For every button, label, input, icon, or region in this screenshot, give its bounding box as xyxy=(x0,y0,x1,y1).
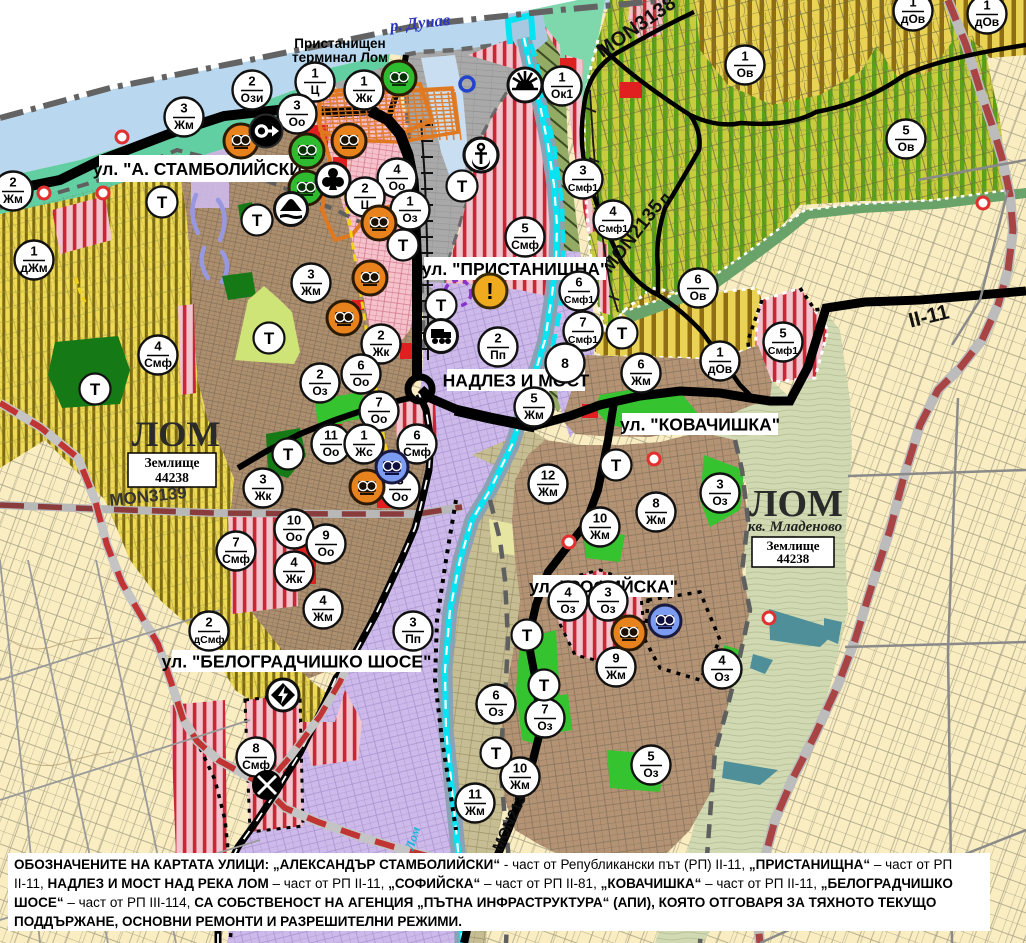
svg-text:дОв: дОв xyxy=(708,362,732,376)
svg-text:Оз: Оз xyxy=(488,705,503,719)
svg-text:Жм: Жм xyxy=(645,513,666,527)
svg-text:Смф: Смф xyxy=(511,238,539,252)
svg-text:Жм: Жм xyxy=(537,485,558,499)
svg-text:10: 10 xyxy=(593,511,607,526)
svg-text:Оз: Оз xyxy=(714,670,729,684)
svg-text:Оо: Оо xyxy=(318,545,335,559)
svg-text:Оз: Оз xyxy=(600,602,615,616)
svg-text:Ов: Ов xyxy=(737,66,754,80)
svg-text:Т: Т xyxy=(457,177,468,196)
svg-text:дОв: дОв xyxy=(901,12,925,26)
svg-text:Смф: Смф xyxy=(222,552,250,566)
svg-text:Ц: Ц xyxy=(311,83,320,97)
svg-text:10: 10 xyxy=(513,761,527,776)
svg-text:Смф: Смф xyxy=(242,758,270,772)
svg-text:Т: Т xyxy=(264,329,275,348)
svg-text:3: 3 xyxy=(180,101,187,116)
svg-text:1: 1 xyxy=(406,194,413,209)
svg-text:!: ! xyxy=(486,278,494,304)
svg-text:4: 4 xyxy=(564,585,572,600)
svg-text:Оз: Оз xyxy=(712,494,727,508)
svg-text:ул. "А. СТАМБОЛИЙСКИ": ул. "А. СТАМБОЛИЙСКИ" xyxy=(93,158,310,179)
svg-text:Т: Т xyxy=(611,456,622,475)
svg-text:Жк: Жк xyxy=(254,489,273,503)
svg-text:5: 5 xyxy=(902,123,909,138)
svg-text:4: 4 xyxy=(154,339,162,354)
svg-text:ЛОМ: ЛОМ xyxy=(132,414,221,454)
svg-text:8: 8 xyxy=(252,741,259,756)
svg-text:Оо: Оо xyxy=(371,412,388,426)
svg-text:1: 1 xyxy=(716,345,723,360)
svg-text:Смф1: Смф1 xyxy=(598,223,628,235)
svg-text:Т: Т xyxy=(157,193,168,212)
svg-text:4: 4 xyxy=(319,593,327,608)
svg-text:Ов: Ов xyxy=(690,289,707,303)
svg-text:1: 1 xyxy=(30,244,37,259)
svg-text:ул. "БЕЛОГРАДЧИШКО ШОСЕ": ул. "БЕЛОГРАДЧИШКО ШОСЕ" xyxy=(162,651,432,671)
svg-text:7: 7 xyxy=(541,702,548,717)
svg-text:7: 7 xyxy=(232,535,239,550)
svg-text:дЖм: дЖм xyxy=(20,261,47,275)
svg-text:Оо: Оо xyxy=(353,375,370,389)
svg-text:11: 11 xyxy=(468,787,482,802)
svg-text:11: 11 xyxy=(324,428,338,443)
svg-text:Ов: Ов xyxy=(898,140,915,154)
svg-text:дСмф: дСмф xyxy=(193,634,224,646)
svg-text:2: 2 xyxy=(9,175,16,190)
svg-text:4: 4 xyxy=(609,204,617,219)
svg-text:Пп: Пп xyxy=(405,632,421,646)
svg-text:3: 3 xyxy=(307,267,314,282)
svg-text:кв. Младеново: кв. Младеново xyxy=(748,519,842,535)
svg-text:6: 6 xyxy=(357,358,364,373)
svg-text:Жм: Жм xyxy=(312,610,333,624)
svg-text:1: 1 xyxy=(558,70,565,85)
svg-text:Смф: Смф xyxy=(403,445,431,459)
svg-text:Пп: Пп xyxy=(490,348,506,362)
svg-text:Пристанищен: Пристанищен xyxy=(294,36,385,51)
svg-text:1: 1 xyxy=(983,0,990,13)
svg-text:Оз: Оз xyxy=(560,602,575,616)
svg-text:1: 1 xyxy=(360,428,367,443)
svg-text:4: 4 xyxy=(393,162,401,177)
svg-text:Оо: Оо xyxy=(323,445,340,459)
svg-text:Жм: Жм xyxy=(173,118,194,132)
svg-text:7: 7 xyxy=(375,395,382,410)
svg-text:Жм: Жм xyxy=(589,528,610,542)
svg-text:1: 1 xyxy=(741,49,748,64)
svg-text:Смф1: Смф1 xyxy=(568,182,598,194)
svg-text:2: 2 xyxy=(248,74,255,89)
svg-text:Жм: Жм xyxy=(509,778,530,792)
svg-text:7: 7 xyxy=(579,315,586,330)
svg-text:4: 4 xyxy=(290,555,298,570)
svg-text:3: 3 xyxy=(259,472,266,487)
svg-text:5: 5 xyxy=(530,391,537,406)
svg-text:44238: 44238 xyxy=(777,551,810,566)
svg-text:дОв: дОв xyxy=(975,15,999,29)
svg-text:3: 3 xyxy=(579,163,586,178)
svg-text:Т: Т xyxy=(617,324,628,343)
svg-text:6: 6 xyxy=(694,272,701,287)
svg-text:Жк: Жк xyxy=(355,91,374,105)
svg-text:8: 8 xyxy=(652,496,659,511)
svg-text:9: 9 xyxy=(322,528,329,543)
svg-text:Т: Т xyxy=(539,676,550,695)
svg-text:6: 6 xyxy=(575,275,582,290)
svg-text:Жм: Жм xyxy=(2,192,23,206)
svg-text:10: 10 xyxy=(287,513,301,528)
svg-text:Жм: Жм xyxy=(630,374,651,388)
svg-text:Жм: Жм xyxy=(523,408,544,422)
svg-text:5: 5 xyxy=(779,326,786,341)
svg-text:Т: Т xyxy=(283,445,294,464)
svg-text:Оз: Оз xyxy=(643,766,658,780)
svg-text:6: 6 xyxy=(637,357,644,372)
svg-text:Ози: Ози xyxy=(241,91,264,105)
svg-text:8: 8 xyxy=(561,355,569,371)
svg-text:1: 1 xyxy=(311,66,318,81)
svg-text:Оо: Оо xyxy=(286,530,303,544)
svg-text:44238: 44238 xyxy=(155,470,189,485)
svg-text:2: 2 xyxy=(361,181,368,196)
svg-text:3: 3 xyxy=(409,615,416,630)
svg-text:Т: Т xyxy=(398,236,409,255)
svg-text:1: 1 xyxy=(909,0,916,10)
svg-text:Землище: Землище xyxy=(144,455,199,470)
svg-text:3: 3 xyxy=(293,98,300,113)
svg-text:Оз: Оз xyxy=(312,384,327,398)
svg-text:Т: Т xyxy=(90,380,101,399)
svg-text:2: 2 xyxy=(205,615,212,630)
svg-text:9: 9 xyxy=(612,651,619,666)
svg-text:Оз: Оз xyxy=(402,211,417,225)
svg-text:Т: Т xyxy=(491,744,502,763)
svg-text:Жк: Жк xyxy=(285,572,304,586)
svg-text:Оо: Оо xyxy=(289,115,306,129)
svg-text:4: 4 xyxy=(718,653,726,668)
svg-text:Ок1: Ок1 xyxy=(551,87,573,101)
svg-text:Жм: Жм xyxy=(464,804,485,818)
svg-text:ул. "КОВАЧИШКА": ул. "КОВАЧИШКА" xyxy=(620,414,780,434)
svg-text:2: 2 xyxy=(316,367,323,382)
svg-text:5: 5 xyxy=(521,221,528,236)
svg-text:Оз: Оз xyxy=(537,719,552,733)
svg-text:1: 1 xyxy=(360,74,367,89)
svg-text:6: 6 xyxy=(413,428,420,443)
svg-text:12: 12 xyxy=(541,468,555,483)
svg-text:5: 5 xyxy=(647,749,654,764)
svg-text:Жс: Жс xyxy=(354,445,373,459)
svg-text:Т: Т xyxy=(522,626,533,645)
svg-text:6: 6 xyxy=(492,688,499,703)
svg-text:2: 2 xyxy=(494,331,501,346)
svg-text:терминал Лом: терминал Лом xyxy=(292,50,388,65)
svg-text:Жк: Жк xyxy=(372,345,391,359)
svg-text:Жм: Жм xyxy=(605,668,626,682)
svg-text:Жм: Жм xyxy=(300,284,321,298)
svg-text:Оо: Оо xyxy=(392,490,409,504)
svg-text:Смф: Смф xyxy=(144,356,172,370)
svg-text:Т: Т xyxy=(252,211,263,230)
svg-text:3: 3 xyxy=(604,585,611,600)
svg-text:2: 2 xyxy=(377,328,384,343)
svg-text:Т: Т xyxy=(436,296,447,315)
svg-text:3: 3 xyxy=(716,477,723,492)
svg-text:Смф1: Смф1 xyxy=(768,345,798,357)
svg-text:Смф1: Смф1 xyxy=(564,294,594,306)
